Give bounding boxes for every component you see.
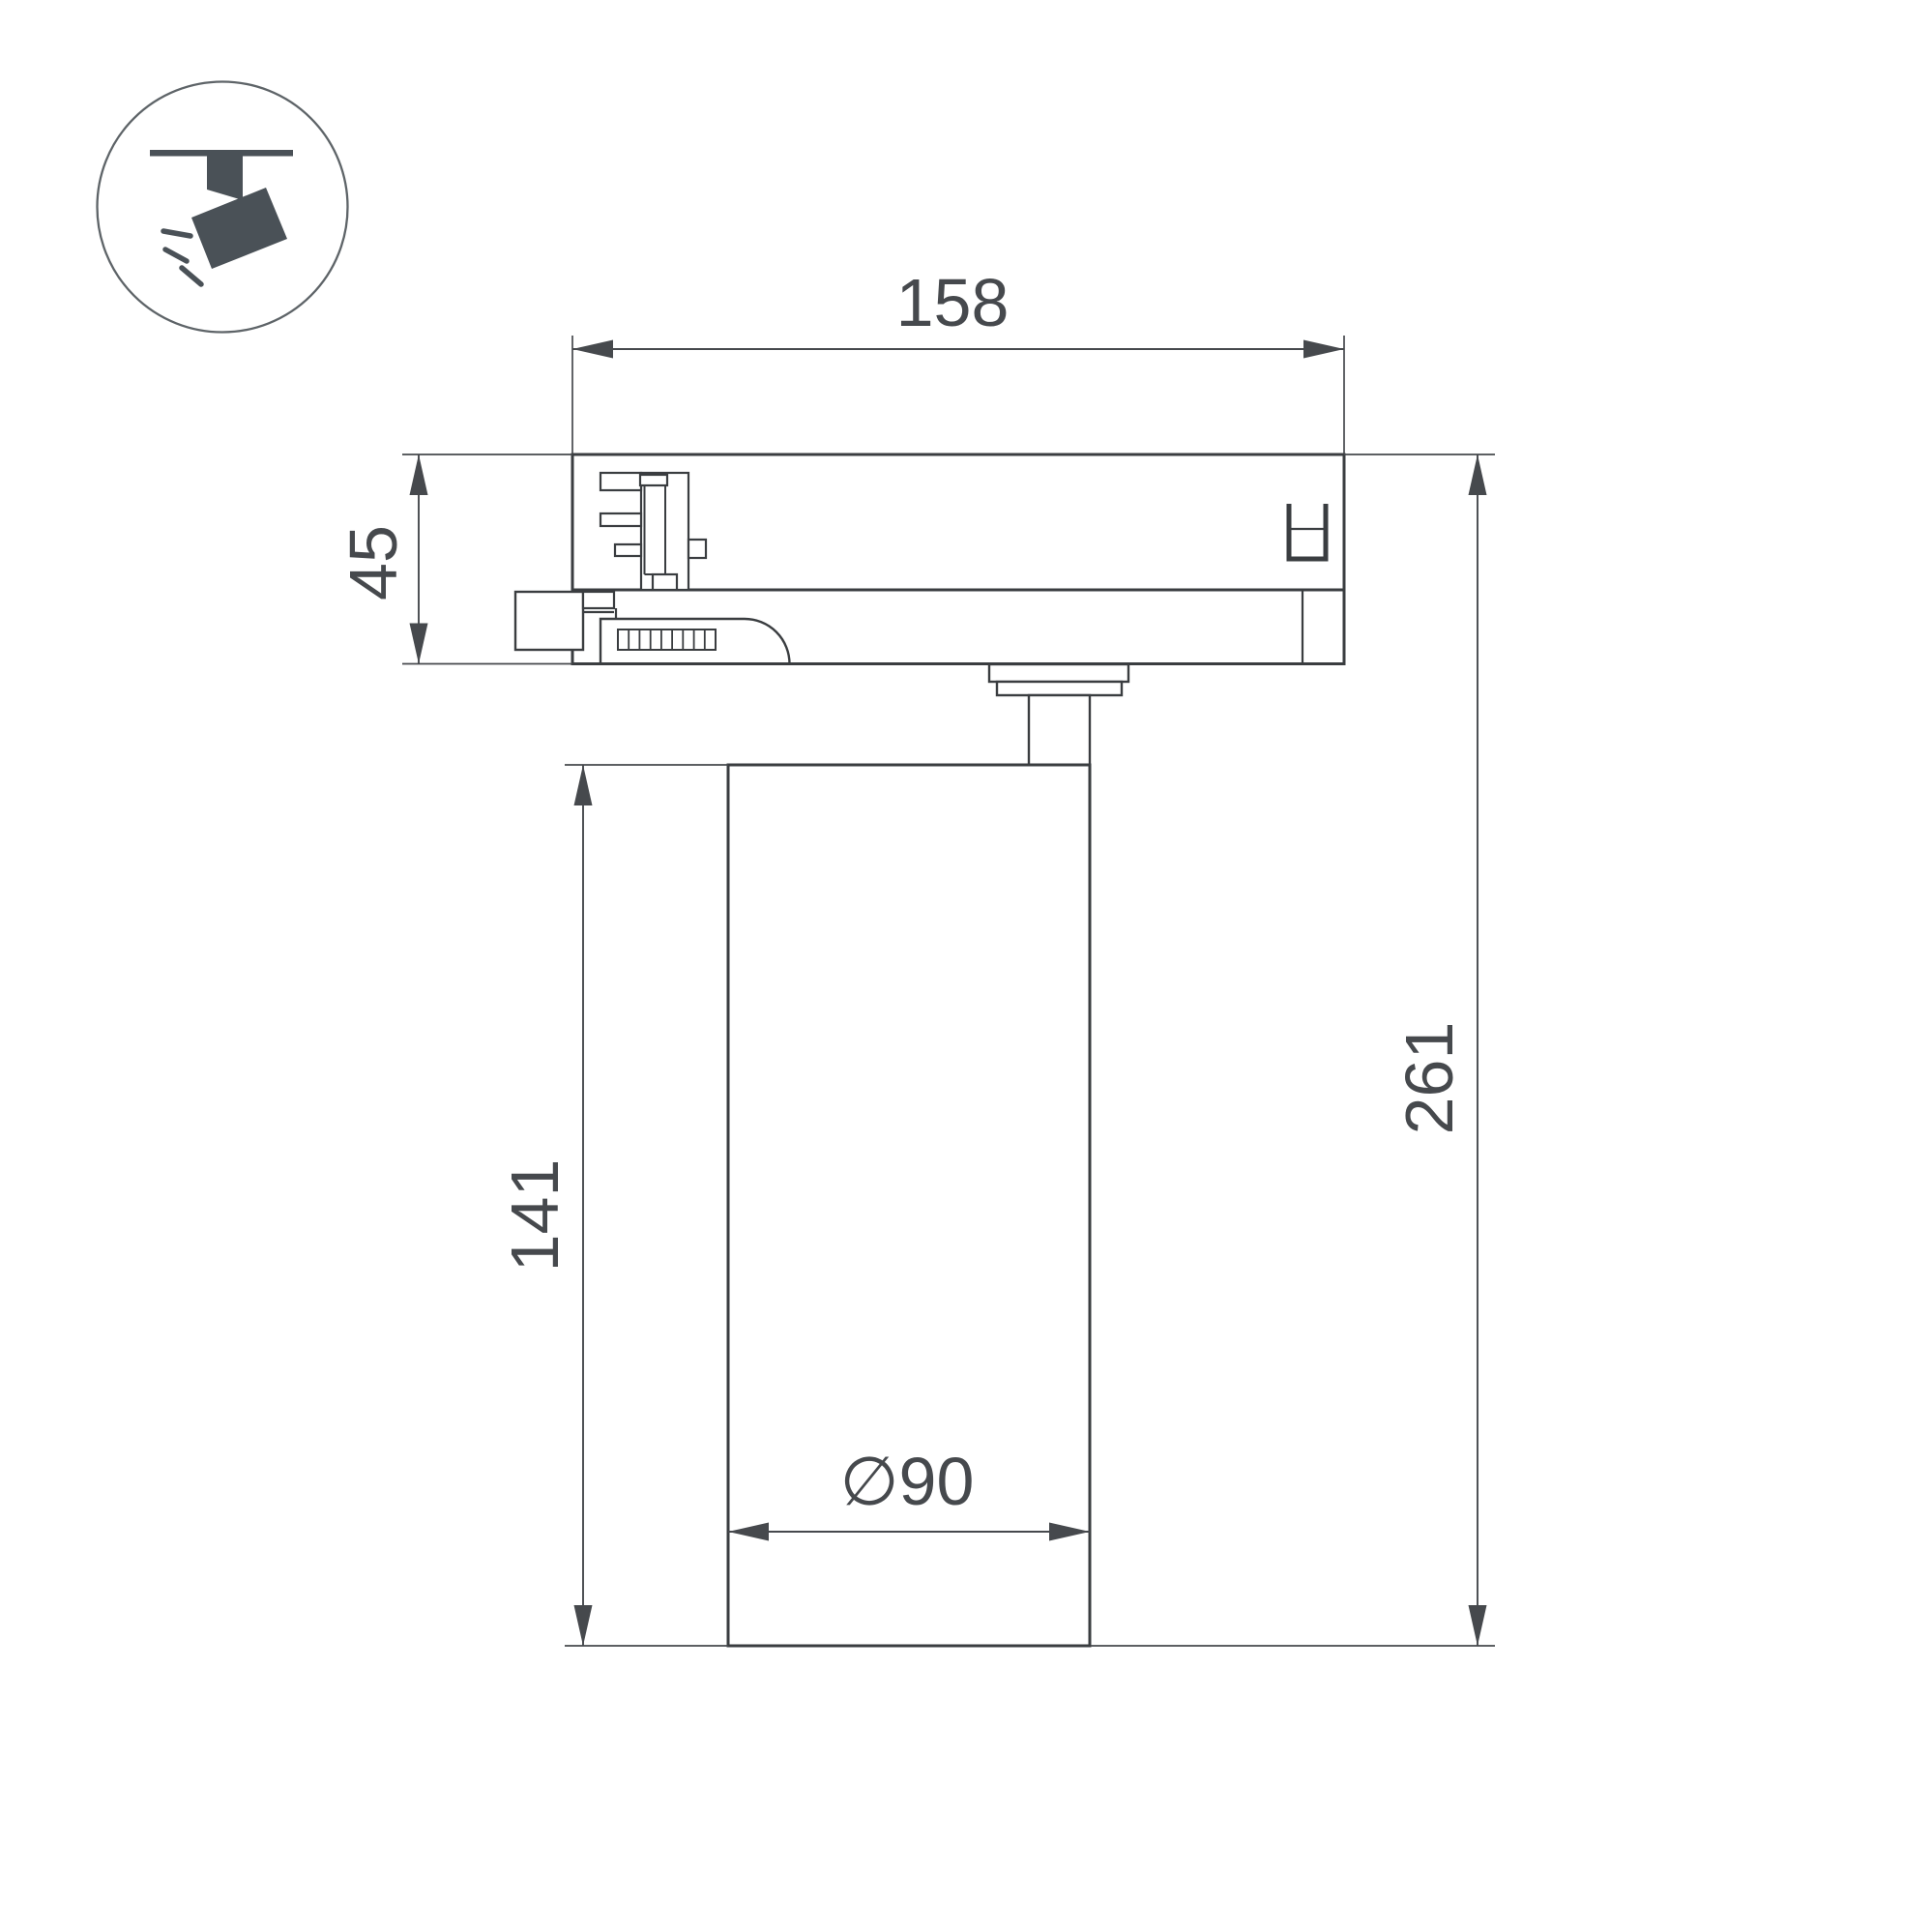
- dimension-label-body-height: 141: [497, 1159, 572, 1273]
- mount-flange-lower: [997, 682, 1122, 695]
- track-adapter: [515, 454, 1344, 765]
- contact-pin-lower: [615, 544, 641, 556]
- arrow-down: [410, 624, 428, 664]
- arrow-up: [1469, 454, 1487, 495]
- mount-flange-upper: [989, 664, 1128, 682]
- dimension-total-height: 261: [1091, 454, 1495, 1646]
- contact-foot: [653, 574, 677, 590]
- latch-tongue: [583, 592, 614, 608]
- arrow-down: [1469, 1605, 1487, 1646]
- adapter-lower-body: [572, 590, 1344, 664]
- track-rail-icon: [150, 150, 293, 157]
- arrow-up: [574, 765, 593, 805]
- arrow-up: [410, 454, 428, 495]
- contact-cap: [640, 475, 667, 485]
- dimension-label-adapter-height: 45: [336, 525, 411, 600]
- ventilation-grille: [618, 629, 716, 650]
- technical-drawing-canvas: 158 45 141 261 ∅90: [0, 0, 1932, 1932]
- arrow-right: [1303, 340, 1344, 359]
- contact-pin-middle: [600, 513, 641, 526]
- dimension-body-height: 141: [497, 765, 728, 1646]
- dimensional-drawing: 158 45 141 261 ∅90: [0, 0, 1932, 1932]
- swivel-neck: [1029, 695, 1090, 765]
- contact-side-tab: [688, 540, 706, 558]
- track-spotlight-icon: [98, 82, 348, 333]
- dimension-adapter-width: 158: [572, 265, 1344, 454]
- contact-pin-top: [600, 473, 641, 490]
- dimension-label-adapter-width: 158: [896, 265, 1010, 340]
- arrow-left: [572, 340, 613, 359]
- arrow-down: [574, 1605, 593, 1646]
- dimension-label-total-height: 261: [1391, 1022, 1467, 1135]
- dimension-label-body-diameter: ∅90: [840, 1444, 975, 1519]
